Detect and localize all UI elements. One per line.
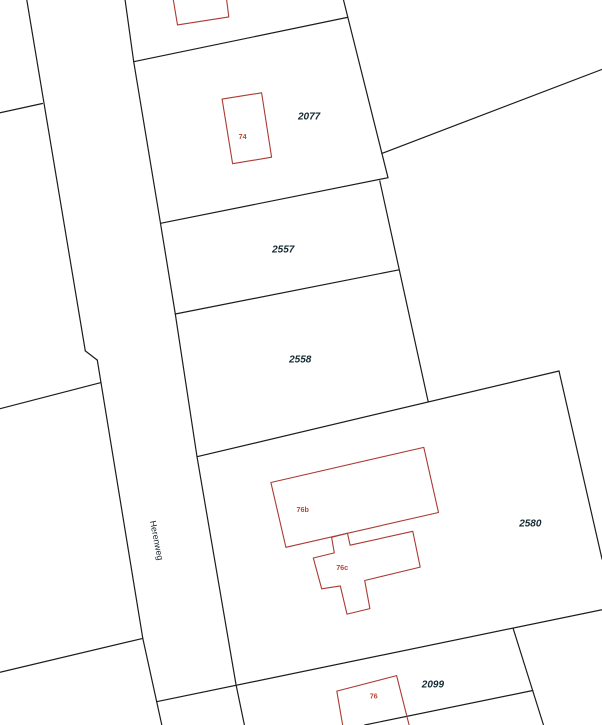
svg-text:2099: 2099	[421, 680, 445, 691]
svg-text:76: 76	[370, 692, 378, 701]
svg-text:2580: 2580	[518, 519, 542, 530]
svg-text:2077: 2077	[297, 111, 321, 122]
svg-text:74: 74	[239, 132, 247, 141]
svg-text:76b: 76b	[297, 505, 310, 514]
svg-text:2557: 2557	[271, 245, 295, 256]
svg-text:Herenweg: Herenweg	[148, 520, 166, 561]
svg-text:76c: 76c	[336, 563, 348, 572]
svg-text:2558: 2558	[288, 354, 312, 365]
